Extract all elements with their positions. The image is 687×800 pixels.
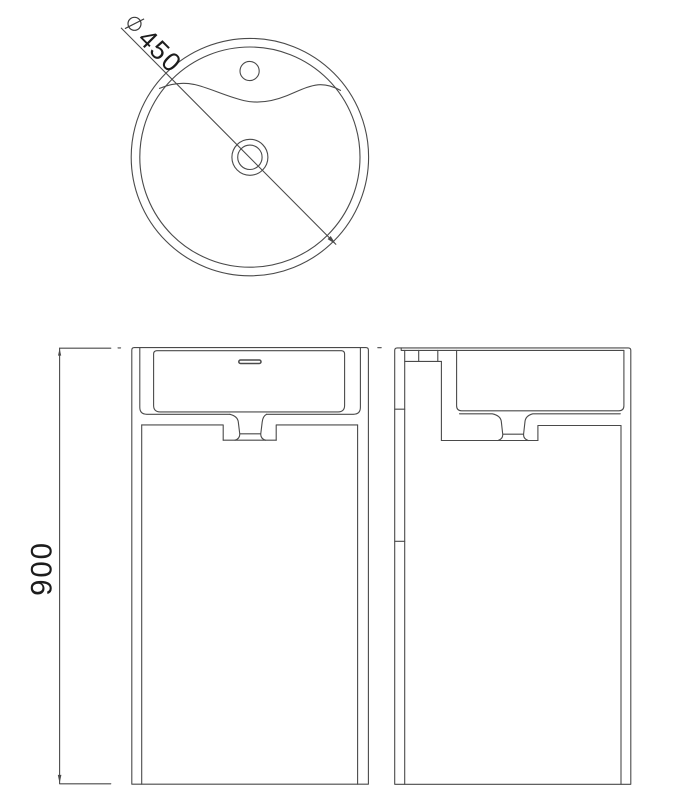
svg-text:450: 450 <box>132 23 188 79</box>
svg-text:900: 900 <box>26 541 59 596</box>
